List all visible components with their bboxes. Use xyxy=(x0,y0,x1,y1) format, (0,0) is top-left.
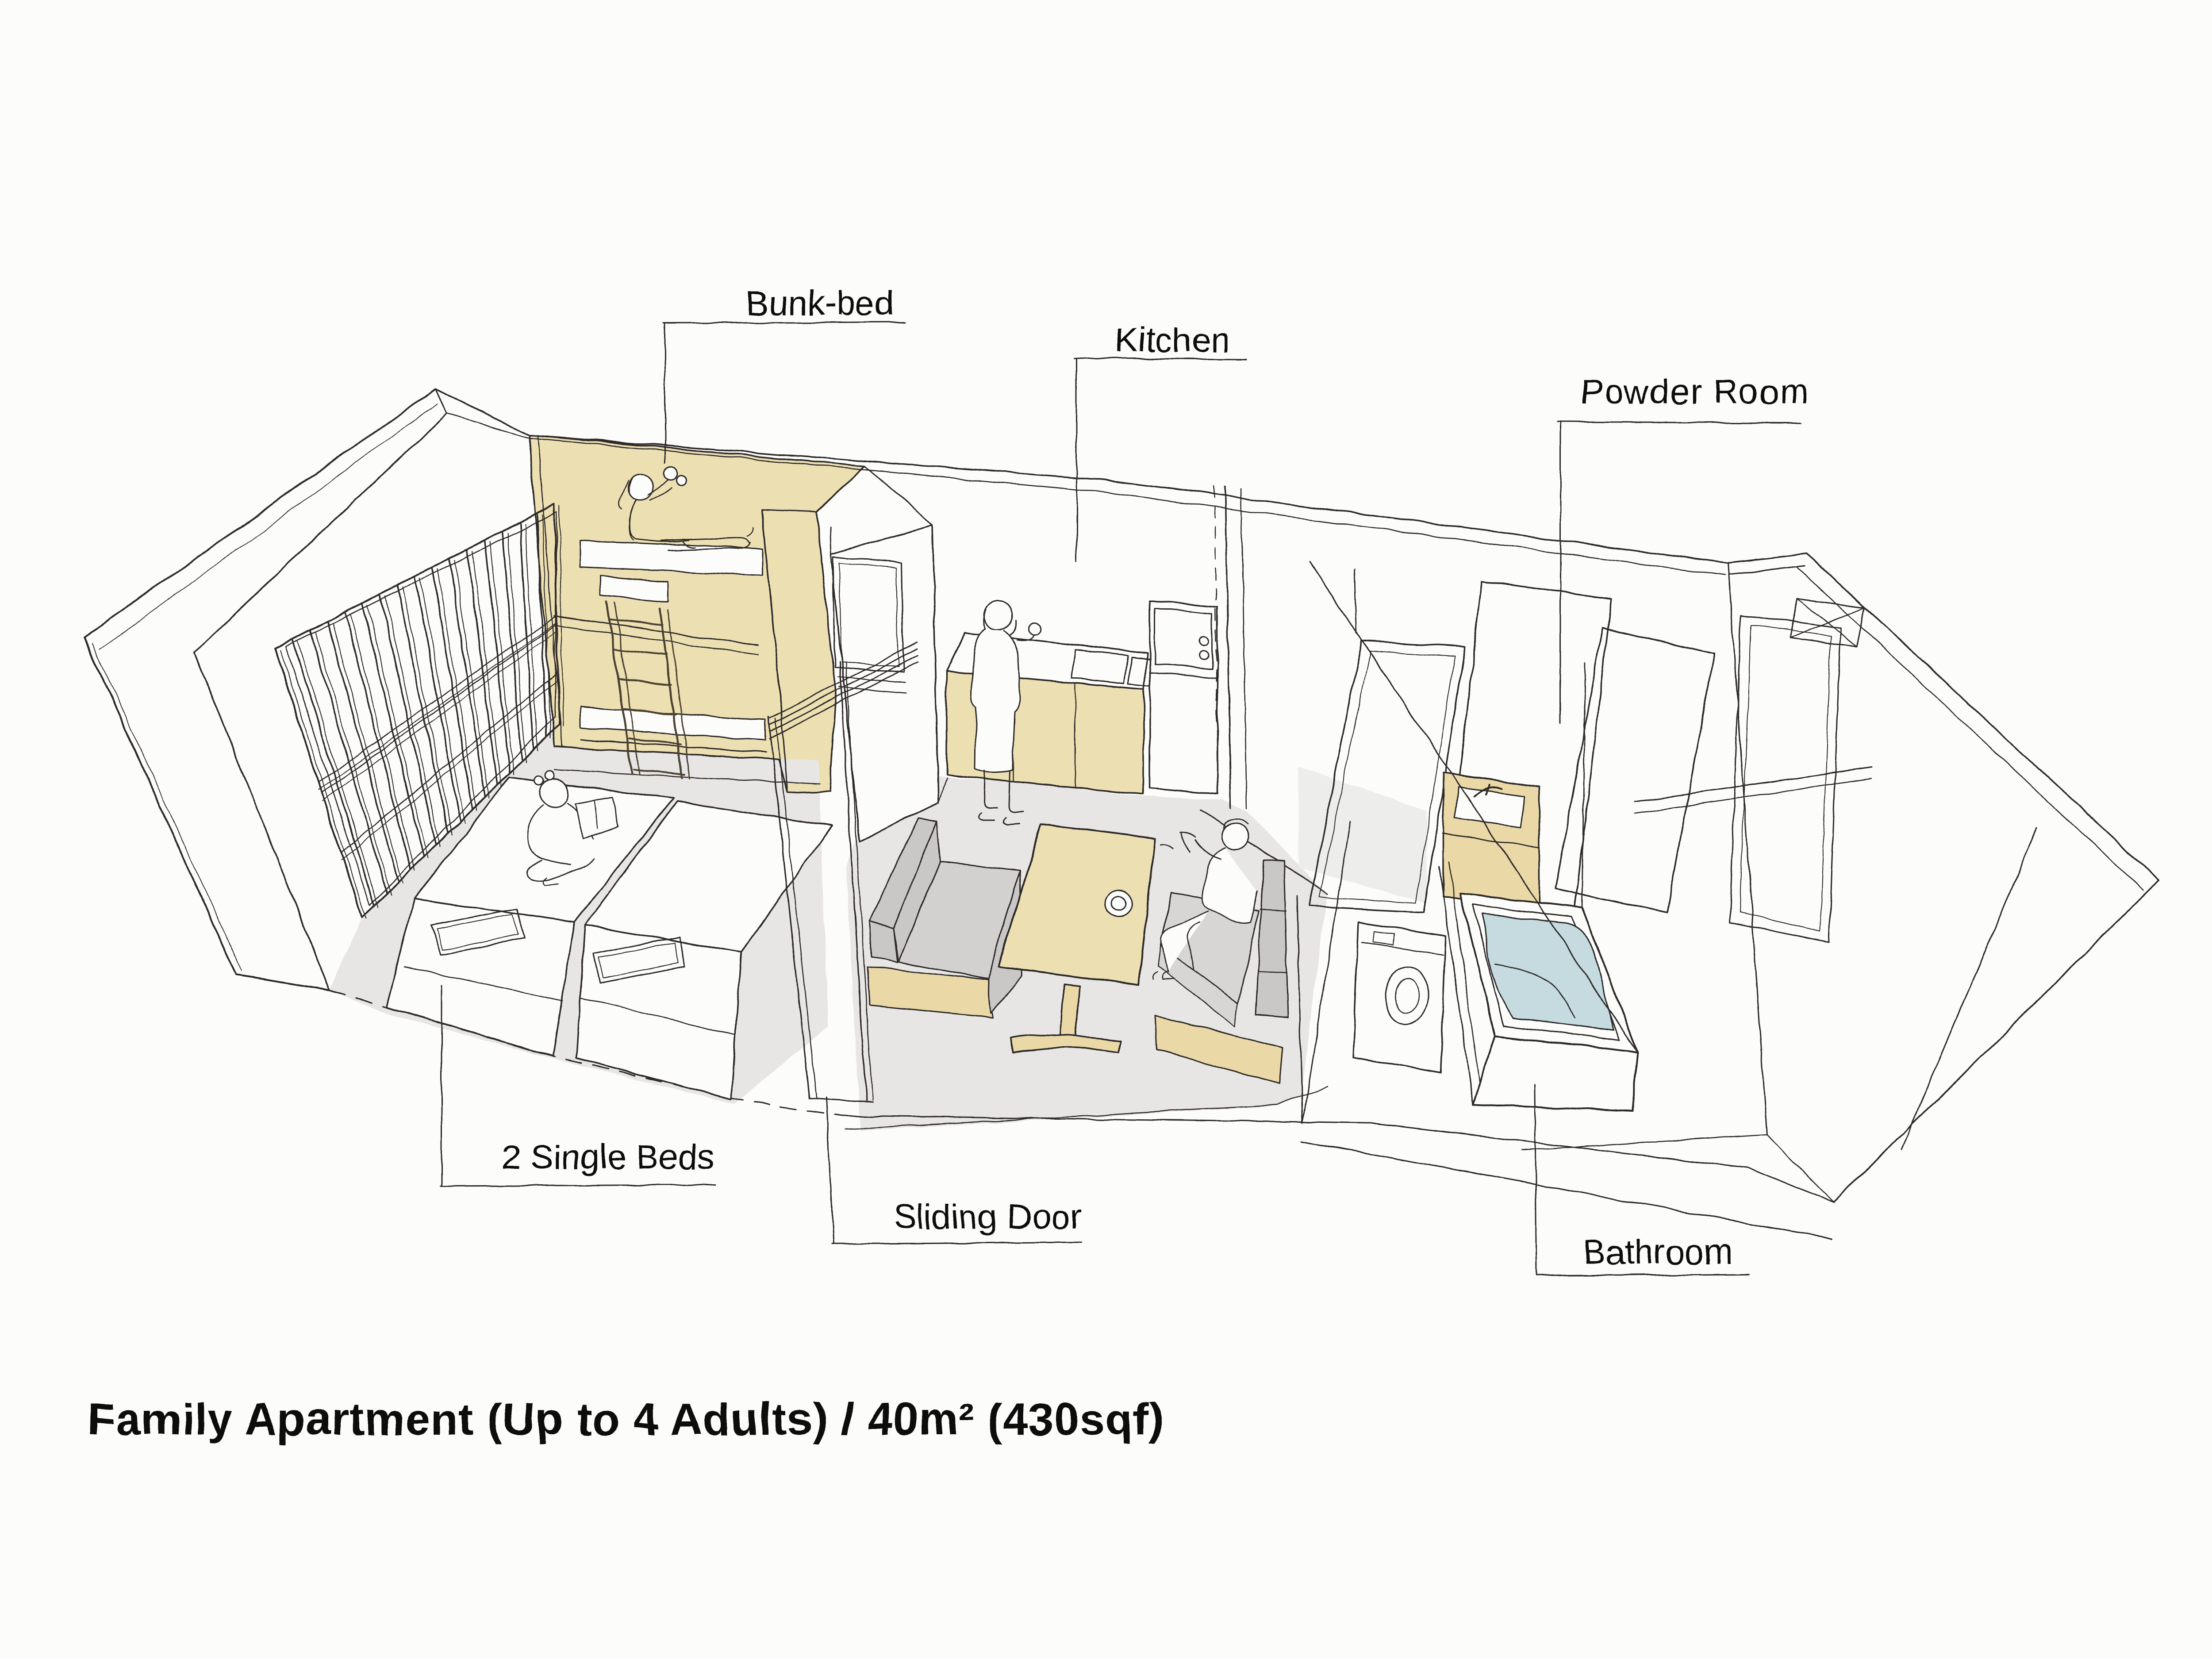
svg-text:Sliding Door: Sliding Door xyxy=(894,1197,1082,1236)
svg-text:Kitchen: Kitchen xyxy=(1115,320,1230,359)
svg-text:2 Single Beds: 2 Single Beds xyxy=(502,1137,714,1176)
svg-text:Family Apartment (Up to 4 Adul: Family Apartment (Up to 4 Adults) / 40m²… xyxy=(88,1394,1164,1444)
svg-text:Bunk-bed: Bunk-bed xyxy=(746,284,894,323)
svg-text:Bathroom: Bathroom xyxy=(1583,1233,1732,1271)
svg-text:Powder Room: Powder Room xyxy=(1580,372,1809,411)
